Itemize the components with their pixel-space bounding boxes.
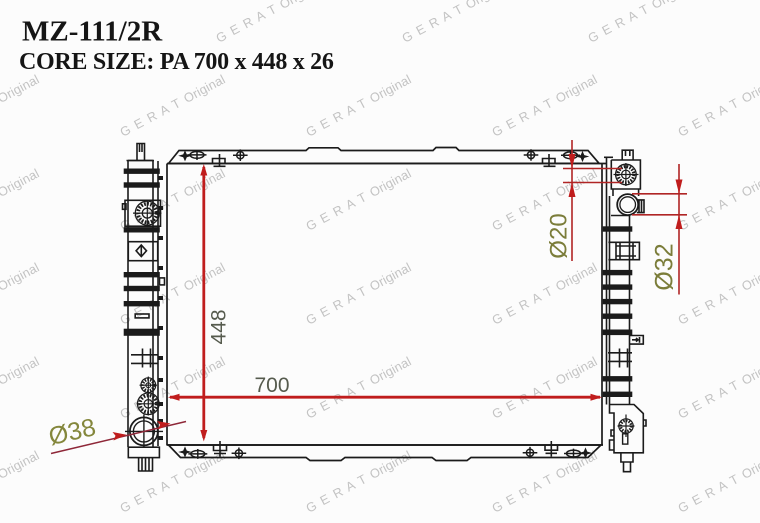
svg-text:Ø38: Ø38 [46, 413, 98, 451]
svg-text:Ø20: Ø20 [545, 213, 572, 258]
svg-text:Ø32: Ø32 [651, 243, 679, 290]
svg-text:700: 700 [254, 374, 289, 397]
svg-text:448: 448 [208, 309, 231, 344]
svg-text:CORE SIZE: PA 700 x 448 x 26: CORE SIZE: PA 700 x 448 x 26 [19, 49, 334, 75]
svg-text:MZ-111/2R: MZ-111/2R [22, 16, 163, 48]
